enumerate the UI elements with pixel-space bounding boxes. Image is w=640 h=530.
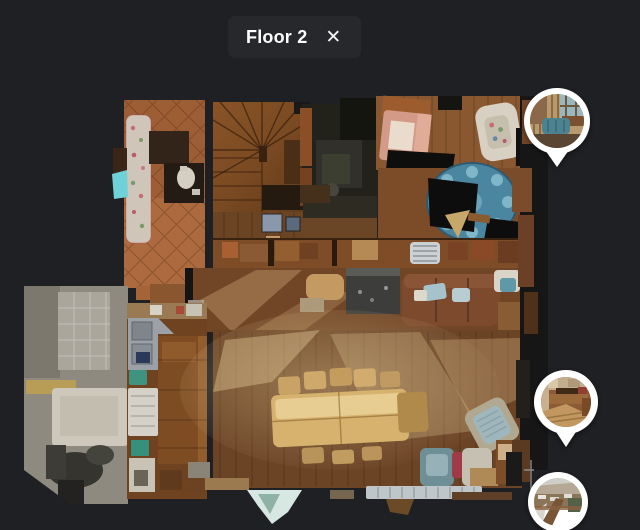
floor-title: Floor 2 bbox=[246, 27, 307, 48]
floor-selector-pill: Floor 2 ✕ bbox=[228, 16, 361, 58]
leather-sofa bbox=[402, 274, 500, 326]
floor-view-screen: Floor 2 ✕ bbox=[0, 0, 640, 530]
floorplan-canvas[interactable] bbox=[0, 0, 640, 530]
striped-cushion bbox=[410, 242, 440, 264]
console-shelf-band bbox=[213, 238, 522, 268]
room-dark-bath bbox=[300, 98, 380, 240]
room-bedroom bbox=[376, 96, 528, 174]
terrace bbox=[24, 286, 128, 504]
scan-fragments-bottom bbox=[247, 486, 512, 524]
pano-pin-bottom[interactable] bbox=[528, 472, 588, 530]
close-button[interactable]: ✕ bbox=[323, 26, 343, 49]
blue-rug bbox=[378, 163, 522, 244]
fireplace bbox=[346, 268, 400, 314]
dining-room bbox=[180, 310, 522, 490]
spiral-staircase bbox=[213, 102, 310, 212]
pano-thumbnail-kitchen bbox=[541, 377, 591, 427]
floral-runner bbox=[126, 115, 151, 243]
dishwasher bbox=[128, 388, 158, 436]
floorplan-scan bbox=[24, 96, 548, 524]
